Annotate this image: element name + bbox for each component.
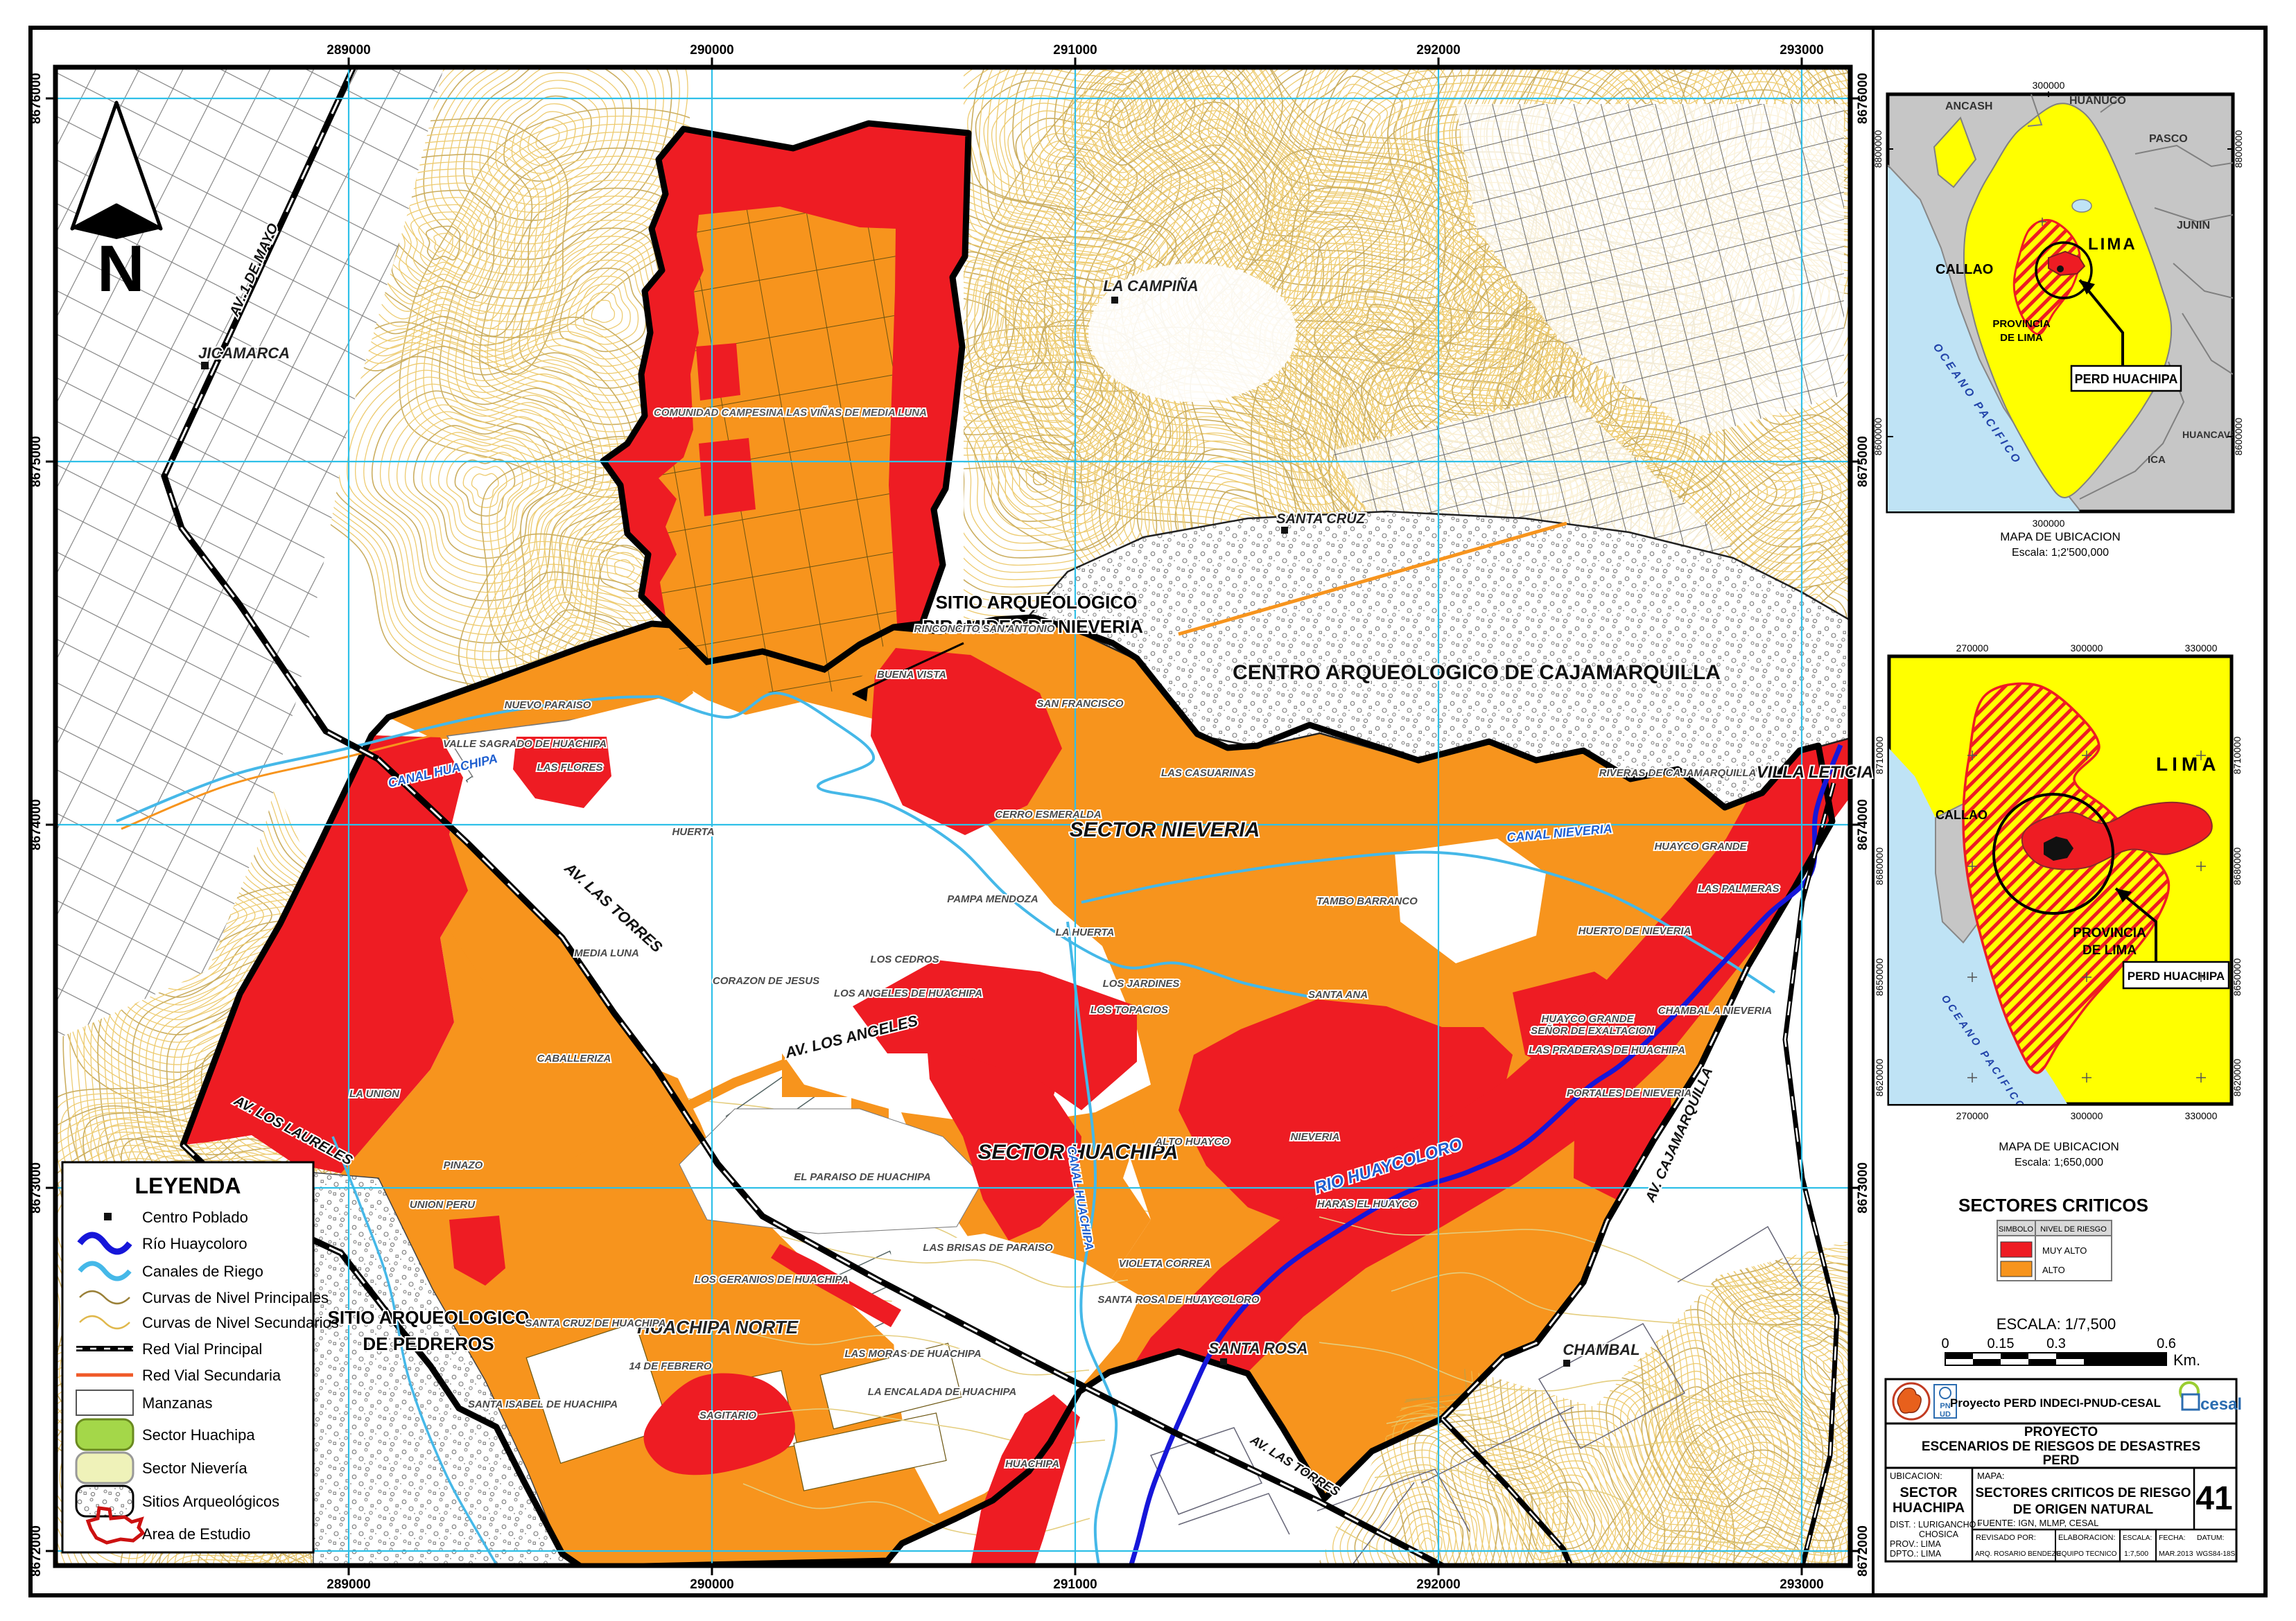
svg-text:LAS PRADERAS DE HUACHIPA: LAS PRADERAS DE HUACHIPA — [1529, 1044, 1685, 1056]
svg-text:LEYENDA: LEYENDA — [135, 1173, 241, 1198]
svg-text:CHAMBAL: CHAMBAL — [1563, 1341, 1640, 1358]
svg-text:PERD: PERD — [2043, 1453, 2080, 1468]
svg-text:PROVINCIA: PROVINCIA — [2073, 926, 2146, 940]
svg-text:CHOSICA: CHOSICA — [1919, 1530, 1959, 1539]
svg-text:LA ENCALADA DE HUACHIPA: LA ENCALADA DE HUACHIPA — [868, 1386, 1016, 1398]
svg-text:300000: 300000 — [2033, 518, 2065, 529]
svg-text:8672000: 8672000 — [1856, 1525, 1870, 1577]
svg-text:289000: 289000 — [327, 43, 370, 58]
svg-text:MAPA DE UBICACION: MAPA DE UBICACION — [2000, 530, 2121, 543]
svg-text:HUAYCO GRANDE: HUAYCO GRANDE — [1541, 1013, 1634, 1025]
svg-text:FECHA:: FECHA: — [2159, 1534, 2186, 1542]
svg-text:8680000: 8680000 — [2232, 848, 2243, 886]
svg-text:CALLAO: CALLAO — [1936, 808, 1988, 822]
svg-text:0: 0 — [1941, 1336, 1949, 1351]
svg-text:ELABORACION:: ELABORACION: — [2058, 1534, 2116, 1542]
svg-text:289000: 289000 — [327, 1577, 370, 1592]
svg-text:VIOLETA CORREA: VIOLETA CORREA — [1119, 1258, 1211, 1270]
svg-text:LOS ANGELES DE HUACHIPA: LOS ANGELES DE HUACHIPA — [834, 988, 982, 999]
svg-text:8673000: 8673000 — [29, 1162, 44, 1213]
svg-text:Centro Poblado: Centro Poblado — [142, 1209, 248, 1226]
svg-text:270000: 270000 — [1956, 1110, 1989, 1121]
svg-text:NIEVERIA: NIEVERIA — [1291, 1131, 1340, 1143]
svg-text:SANTA ROSA: SANTA ROSA — [1209, 1340, 1308, 1357]
svg-text:8674000: 8674000 — [29, 799, 44, 850]
svg-text:LA HUERTA: LA HUERTA — [1056, 927, 1115, 938]
svg-text:PINAZO: PINAZO — [444, 1159, 483, 1171]
svg-text:ANCASH: ANCASH — [1945, 100, 1992, 112]
svg-text:REVISADO POR:: REVISADO POR: — [1976, 1534, 2036, 1542]
svg-text:PERD HUACHIPA: PERD HUACHIPA — [2075, 372, 2178, 386]
svg-text:LA CAMPIÑA: LA CAMPIÑA — [1103, 277, 1198, 295]
svg-text:8672000: 8672000 — [29, 1525, 44, 1577]
svg-text:RIVERAS DE CAJAMARQUILLA: RIVERAS DE CAJAMARQUILLA — [1599, 767, 1757, 779]
svg-text:SANTA ROSA DE HUAYCOLORO: SANTA ROSA DE HUAYCOLORO — [1097, 1294, 1260, 1306]
svg-text:RINCONCITO SAN ANTONIO: RINCONCITO SAN ANTONIO — [914, 623, 1054, 635]
svg-text:DATUM:: DATUM: — [2197, 1534, 2224, 1542]
svg-text:CALLAO: CALLAO — [1936, 262, 1993, 277]
svg-text:MEDIA LUNA: MEDIA LUNA — [574, 947, 639, 959]
svg-text:ARQ. ROSARIO BENDEZU: ARQ. ROSARIO BENDEZU — [1975, 1550, 2061, 1558]
svg-text:8710000: 8710000 — [1874, 737, 1885, 775]
svg-text:SECTORES CRITICOS DE RIESGO: SECTORES CRITICOS DE RIESGO — [1975, 1486, 2191, 1500]
svg-text:300000: 300000 — [2071, 642, 2103, 654]
svg-text:SANTA ISABEL DE HUACHIPA: SANTA ISABEL DE HUACHIPA — [468, 1399, 618, 1410]
svg-text:8676000: 8676000 — [1856, 73, 1870, 124]
svg-text:PORTALES DE NIEVERIA: PORTALES DE NIEVERIA — [1567, 1087, 1691, 1099]
svg-text:PN: PN — [1940, 1402, 1950, 1410]
svg-text:8674000: 8674000 — [1856, 799, 1870, 850]
svg-text:EQUIPO TECNICO: EQUIPO TECNICO — [2057, 1550, 2117, 1558]
svg-text:DPTO.: LIMA: DPTO.: LIMA — [1890, 1549, 1942, 1559]
svg-text:SEÑOR DE EXALTACION: SEÑOR DE EXALTACION — [1531, 1024, 1655, 1037]
svg-text:CABALLERIZA: CABALLERIZA — [537, 1053, 611, 1064]
svg-text:8710000: 8710000 — [2232, 737, 2243, 775]
svg-text:HUANUCO: HUANUCO — [2069, 95, 2126, 107]
svg-text:1:7,500: 1:7,500 — [2124, 1550, 2148, 1558]
svg-text:14 DE FEBRERO: 14 DE FEBRERO — [629, 1360, 712, 1372]
svg-text:Curvas de Nivel Secundarios: Curvas de Nivel Secundarios — [142, 1314, 339, 1331]
svg-text:300000: 300000 — [2071, 1110, 2103, 1121]
svg-text:330000: 330000 — [2185, 642, 2218, 654]
svg-text:HUAYCO GRANDE: HUAYCO GRANDE — [1654, 841, 1747, 852]
svg-text:8650000: 8650000 — [1874, 958, 1885, 997]
svg-text:Curvas de Nivel Principales: Curvas de Nivel Principales — [142, 1289, 329, 1306]
svg-text:Sitios Arqueológicos: Sitios Arqueológicos — [142, 1493, 279, 1510]
svg-text:Sector Huachipa: Sector Huachipa — [142, 1426, 255, 1444]
svg-text:SANTA ANA: SANTA ANA — [1308, 989, 1368, 1001]
svg-text:TAMBO BARRANCO: TAMBO BARRANCO — [1316, 895, 1418, 907]
svg-text:LIMA: LIMA — [2088, 235, 2137, 254]
svg-text:WGS84-18S: WGS84-18S — [2196, 1550, 2235, 1558]
svg-text:DIST. : LURIGANCHO -: DIST. : LURIGANCHO - — [1890, 1520, 1981, 1530]
svg-text:Escala: 1;650,000: Escala: 1;650,000 — [2015, 1157, 2103, 1168]
svg-text:292000: 292000 — [1416, 43, 1460, 58]
svg-text:8620000: 8620000 — [1874, 1059, 1885, 1097]
svg-text:Red Vial Principal: Red Vial Principal — [142, 1340, 262, 1358]
svg-text:8675000: 8675000 — [1856, 436, 1870, 487]
svg-text:ESCENARIOS DE RIESGOS DE DESAS: ESCENARIOS DE RIESGOS DE DESASTRES — [1922, 1439, 2200, 1454]
svg-text:PROV.: LIMA: PROV.: LIMA — [1890, 1539, 1942, 1549]
svg-text:Canales de Riego: Canales de Riego — [142, 1263, 263, 1280]
svg-text:HUERTO DE NIEVERIA: HUERTO DE NIEVERIA — [1578, 925, 1691, 937]
svg-text:HUACHIPA: HUACHIPA — [1005, 1458, 1059, 1470]
svg-text:NIVEL DE RIESGO: NIVEL DE RIESGO — [2040, 1225, 2107, 1234]
svg-text:PROYECTO: PROYECTO — [2024, 1425, 2098, 1439]
svg-text:N: N — [97, 232, 145, 306]
svg-text:UD: UD — [1940, 1410, 1951, 1419]
svg-text:PASCO: PASCO — [2149, 133, 2188, 145]
svg-text:SECTOR NIEVERIA: SECTOR NIEVERIA — [1070, 818, 1260, 841]
svg-text:LAS MORAS DE HUACHIPA: LAS MORAS DE HUACHIPA — [844, 1348, 981, 1360]
svg-text:PAMPA MENDOZA: PAMPA MENDOZA — [947, 893, 1038, 905]
svg-text:LAS FLORES: LAS FLORES — [537, 762, 602, 773]
svg-text:ALTO: ALTO — [2042, 1265, 2065, 1275]
svg-text:ESCALA: 1/7,500: ESCALA: 1/7,500 — [1997, 1315, 2116, 1333]
svg-text:DE PEDREROS: DE PEDREROS — [363, 1333, 494, 1354]
svg-text:BUENA VISTA: BUENA VISTA — [877, 669, 946, 681]
svg-text:8600000: 8600000 — [2233, 418, 2244, 456]
svg-text:8680000: 8680000 — [1874, 848, 1885, 886]
svg-text:LA UNION: LA UNION — [349, 1088, 400, 1100]
svg-text:HARAS EL HUAYCO: HARAS EL HUAYCO — [1317, 1198, 1418, 1210]
svg-text:LAS BRISAS DE PARAISO: LAS BRISAS DE PARAISO — [923, 1242, 1053, 1254]
svg-text:VALLE SAGRADO DE HUACHIPA: VALLE SAGRADO DE HUACHIPA — [443, 738, 607, 750]
svg-text:ALTO HUAYCO: ALTO HUAYCO — [1154, 1136, 1230, 1148]
svg-text:SAN FRANCISCO: SAN FRANCISCO — [1036, 698, 1123, 710]
svg-text:LOS CEDROS: LOS CEDROS — [870, 954, 939, 965]
svg-text:8650000: 8650000 — [2232, 958, 2243, 997]
svg-text:291000: 291000 — [1053, 1577, 1097, 1592]
svg-text:290000: 290000 — [690, 1577, 733, 1592]
svg-text:0.6: 0.6 — [2157, 1336, 2176, 1351]
svg-text:Escala: 1;2'500,000: Escala: 1;2'500,000 — [2012, 547, 2109, 559]
svg-text:DE LIMA: DE LIMA — [2082, 943, 2137, 958]
svg-text:8673000: 8673000 — [1856, 1162, 1870, 1213]
svg-text:Río Huaycoloro: Río Huaycoloro — [142, 1235, 247, 1252]
svg-text:CORAZON DE JESUS: CORAZON DE JESUS — [713, 975, 819, 987]
svg-text:COMUNIDAD CAMPESINA LAS VIÑAS: COMUNIDAD CAMPESINA LAS VIÑAS DE MEDIA L… — [654, 406, 927, 419]
svg-text:8600000: 8600000 — [1872, 418, 1884, 456]
svg-text:MAR.2013: MAR.2013 — [2159, 1550, 2193, 1558]
svg-text:JICAMARCA: JICAMARCA — [198, 344, 290, 362]
svg-text:0.3: 0.3 — [2046, 1336, 2066, 1351]
svg-text:UBICACION:: UBICACION: — [1890, 1471, 1942, 1481]
svg-text:UNION PERU: UNION PERU — [410, 1199, 476, 1211]
svg-text:NUEVO PARAISO: NUEVO PARAISO — [505, 699, 591, 711]
svg-text:PERD HUACHIPA: PERD HUACHIPA — [2128, 970, 2225, 983]
svg-text:LOS GERANIOS DE HUACHIPA: LOS GERANIOS DE HUACHIPA — [695, 1274, 849, 1286]
svg-text:291000: 291000 — [1053, 43, 1097, 58]
svg-text:VILLA LETICIA: VILLA LETICIA — [1757, 763, 1873, 782]
svg-text:290000: 290000 — [690, 43, 733, 58]
svg-text:SAGITARIO: SAGITARIO — [699, 1410, 757, 1421]
svg-text:8620000: 8620000 — [2232, 1059, 2243, 1097]
svg-text:LIMA: LIMA — [2156, 753, 2220, 775]
svg-text:MAPA:: MAPA: — [1977, 1471, 2005, 1481]
svg-text:Area de Estudio: Area de Estudio — [142, 1525, 251, 1543]
svg-text:DE LIMA: DE LIMA — [2000, 332, 2043, 344]
svg-text:CERRO ESMERALDA: CERRO ESMERALDA — [995, 809, 1101, 821]
svg-text:293000: 293000 — [1780, 1577, 1823, 1592]
svg-text:cesal: cesal — [2200, 1395, 2242, 1414]
svg-text:SANTA CRUZ DE HUACHIPA: SANTA CRUZ DE HUACHIPA — [525, 1317, 666, 1329]
svg-text:8675000: 8675000 — [29, 436, 44, 487]
svg-text:EL PARAISO DE HUACHIPA: EL PARAISO DE HUACHIPA — [794, 1171, 931, 1183]
svg-text:ICA: ICA — [2148, 454, 2166, 466]
svg-text:0.15: 0.15 — [1988, 1336, 2015, 1351]
svg-text:8800000: 8800000 — [2233, 130, 2244, 168]
svg-text:8800000: 8800000 — [1872, 130, 1884, 168]
svg-text:LAS PALMERAS: LAS PALMERAS — [1698, 883, 1779, 895]
svg-text:SECTOR: SECTOR — [1900, 1485, 1958, 1500]
svg-text:MAPA DE UBICACION: MAPA DE UBICACION — [1999, 1140, 2119, 1153]
svg-text:8676000: 8676000 — [29, 73, 44, 124]
svg-text:330000: 330000 — [2185, 1110, 2218, 1121]
svg-text:LOS TOPACIOS: LOS TOPACIOS — [1090, 1004, 1168, 1016]
svg-text:Manzanas: Manzanas — [142, 1394, 213, 1412]
svg-text:270000: 270000 — [1956, 642, 1989, 654]
svg-text:SECTORES CRITICOS: SECTORES CRITICOS — [1958, 1195, 2148, 1216]
svg-text:CENTRO ARQUEOLOGICO DE CAJAMAR: CENTRO ARQUEOLOGICO DE CAJAMARQUILLA — [1233, 661, 1721, 684]
svg-text:SITIO ARQUEOLOGICO: SITIO ARQUEOLOGICO — [328, 1307, 530, 1328]
svg-text:JUNIN: JUNIN — [2177, 220, 2210, 231]
svg-text:SITIO ARQUEOLOGICO: SITIO ARQUEOLOGICO — [936, 592, 1138, 613]
svg-text:PROVINCIA: PROVINCIA — [1992, 318, 2051, 330]
svg-text:300000: 300000 — [2033, 80, 2065, 91]
svg-text:LOS JARDINES: LOS JARDINES — [1103, 978, 1180, 990]
svg-text:SANTA CRUZ: SANTA CRUZ — [1276, 511, 1366, 527]
svg-text:FUENTE: IGN, MLMP, CESAL: FUENTE: IGN, MLMP, CESAL — [1977, 1518, 2098, 1528]
svg-text:HUACHIPA: HUACHIPA — [1893, 1500, 1965, 1516]
svg-text:292000: 292000 — [1416, 1577, 1460, 1592]
svg-text:LAS CASUARINAS: LAS CASUARINAS — [1161, 767, 1254, 779]
svg-text:Proyecto PERD INDECI-PNUD-CES: Proyecto PERD INDECI-PNUD-CESAL — [1950, 1396, 2161, 1410]
svg-text:Red Vial Secundaria: Red Vial Secundaria — [142, 1367, 281, 1384]
svg-text:HUERTA: HUERTA — [672, 826, 714, 838]
svg-text:293000: 293000 — [1780, 43, 1823, 58]
svg-text:Km.: Km. — [2173, 1351, 2200, 1369]
svg-text:MUY ALTO: MUY ALTO — [2042, 1245, 2087, 1256]
svg-text:41: 41 — [2195, 1480, 2232, 1517]
svg-text:SIMBOLO: SIMBOLO — [1999, 1225, 2034, 1234]
svg-text:Sector Nievería: Sector Nievería — [142, 1460, 247, 1477]
svg-text:DE ORIGEN NATURAL: DE ORIGEN NATURAL — [2013, 1502, 2154, 1517]
svg-text:CHAMBAL A NIEVERIA: CHAMBAL A NIEVERIA — [1658, 1005, 1772, 1017]
svg-text:ESCALA:: ESCALA: — [2123, 1534, 2152, 1542]
